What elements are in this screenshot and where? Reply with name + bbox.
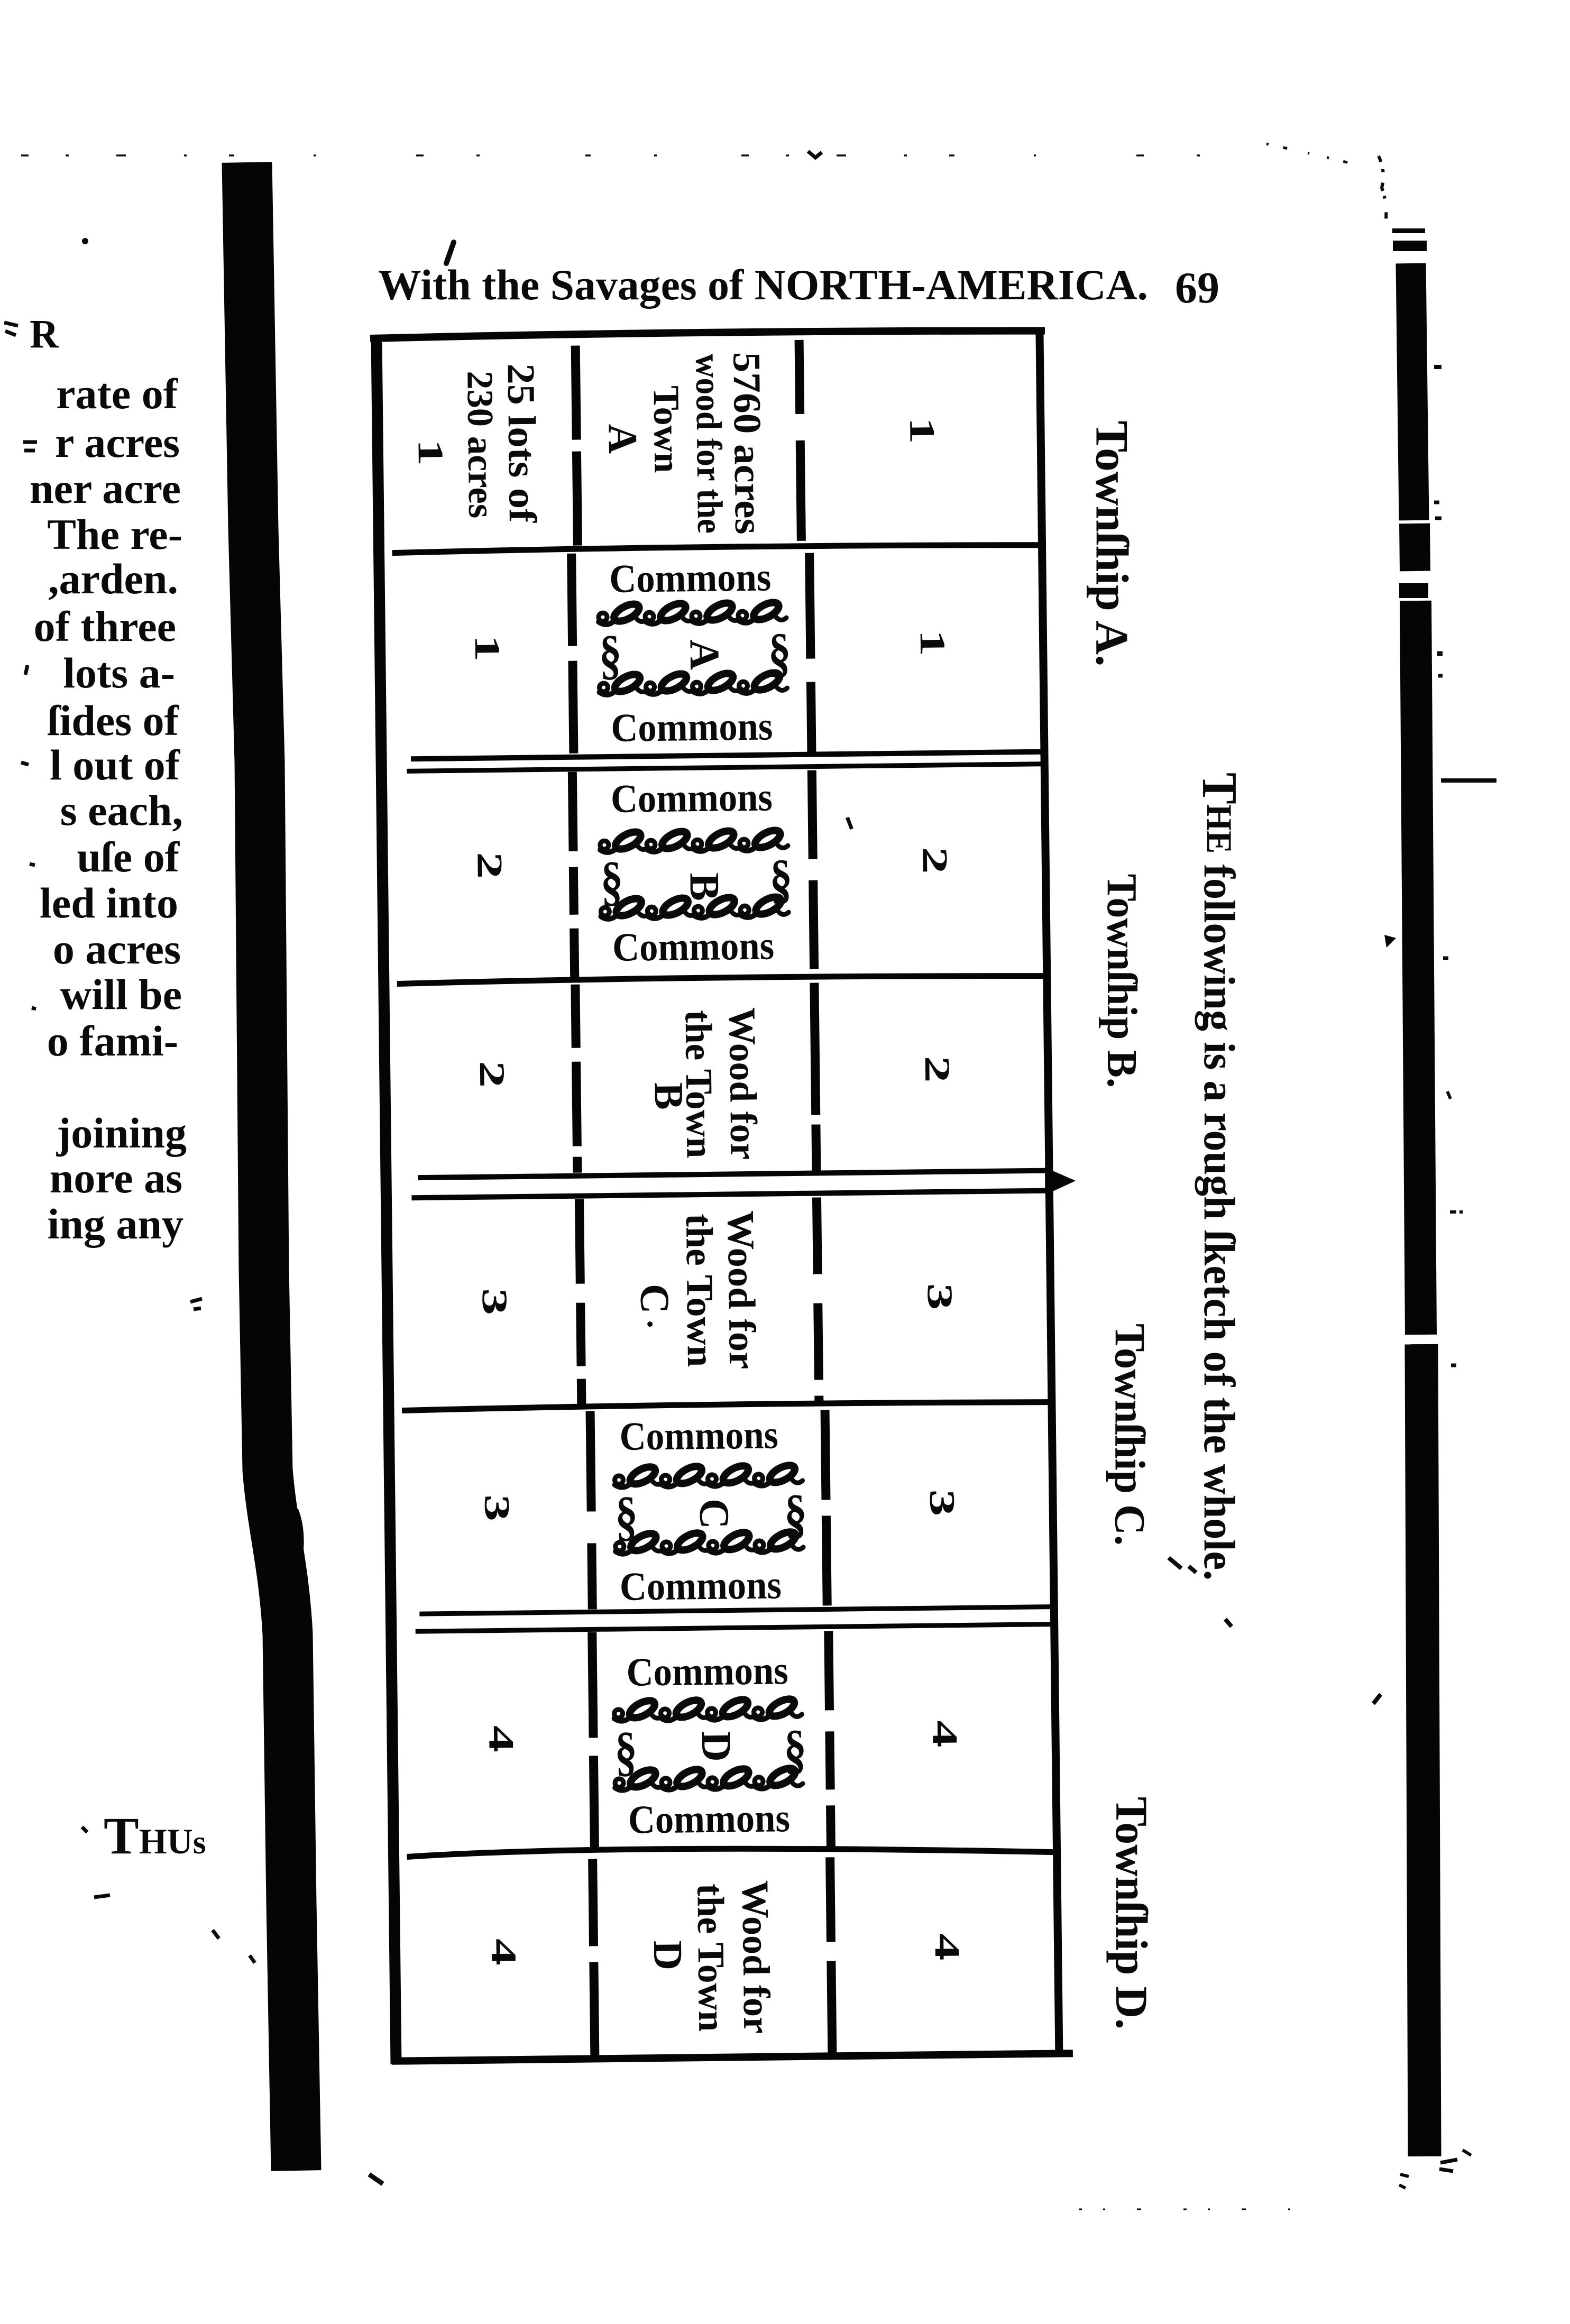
- svg-text:B: B: [646, 1082, 692, 1110]
- svg-text:led into: led into: [40, 879, 178, 927]
- svg-text:Commons: Commons: [609, 555, 772, 601]
- svg-text:r acres: r acres: [55, 418, 180, 466]
- svg-text:A: A: [681, 639, 728, 670]
- svg-text:4: 4: [928, 1933, 968, 1961]
- svg-text:D: D: [693, 1731, 740, 1762]
- svg-text:4: 4: [484, 1938, 524, 1965]
- svg-text:s each,: s each,: [60, 786, 183, 834]
- svg-text:Townſhip A.: Townſhip A.: [1086, 421, 1137, 667]
- svg-text:lots a-: lots a-: [63, 649, 175, 697]
- svg-text:uſe of: uſe of: [77, 833, 180, 881]
- svg-text:ſides of: ſides of: [48, 696, 180, 745]
- svg-text:THE following is a rough ſketc: THE following is a rough ſketch of the w…: [1192, 773, 1247, 1581]
- svg-text:4: 4: [925, 1720, 965, 1748]
- svg-text:1: 1: [902, 417, 942, 444]
- svg-text:Wood for: Wood for: [721, 1007, 765, 1160]
- svg-text:Commons: Commons: [619, 1563, 782, 1609]
- svg-text:3: 3: [475, 1288, 515, 1316]
- svg-text:The re-: The re-: [47, 510, 182, 558]
- svg-text:5760 acres: 5760 acres: [724, 352, 770, 535]
- svg-text:Commons: Commons: [628, 1796, 790, 1842]
- svg-text:230 acres: 230 acres: [459, 371, 501, 519]
- svg-text:Commons: Commons: [611, 704, 773, 750]
- svg-text:nore as: nore as: [50, 1154, 182, 1202]
- svg-text:the Town: the Town: [689, 1883, 733, 2032]
- svg-text:ing any: ing any: [48, 1200, 184, 1248]
- svg-text:With the Savages of NORTH-AMER: With the Savages of NORTH-AMERICA.: [378, 261, 1148, 309]
- svg-text:THUs: THUs: [104, 1806, 206, 1865]
- svg-text:1: 1: [467, 635, 508, 662]
- svg-text:rate of: rate of: [56, 370, 179, 418]
- svg-text:3: 3: [920, 1283, 960, 1310]
- svg-text:R: R: [30, 312, 59, 356]
- svg-text:o acres: o acres: [53, 925, 181, 973]
- svg-text:ner acre: ner acre: [30, 464, 181, 512]
- svg-text:4: 4: [481, 1725, 521, 1752]
- svg-text:B: B: [681, 872, 728, 901]
- svg-text:3: 3: [477, 1494, 517, 1522]
- svg-text:D: D: [645, 1940, 692, 1970]
- svg-text:Town: Town: [646, 385, 687, 473]
- svg-text:o fami-: o fami-: [47, 1017, 178, 1065]
- svg-text:the Town: the Town: [678, 1214, 722, 1367]
- svg-text:1: 1: [913, 629, 953, 657]
- svg-text:C: C: [691, 1498, 738, 1529]
- svg-text:25 lots of: 25 lots of: [499, 363, 544, 523]
- svg-text:3: 3: [922, 1489, 962, 1517]
- svg-text:1: 1: [411, 439, 451, 466]
- svg-text:2: 2: [470, 852, 510, 879]
- svg-text:of three: of three: [34, 602, 176, 650]
- svg-text:Commons: Commons: [610, 775, 773, 821]
- svg-text:Wood for: Wood for: [734, 1880, 778, 2034]
- svg-text:,arden.: ,arden.: [48, 555, 178, 603]
- svg-text:69: 69: [1175, 263, 1219, 313]
- svg-text:Townſhip D.: Townſhip D.: [1106, 1797, 1157, 2029]
- svg-text:A: A: [600, 424, 646, 454]
- svg-text:2: 2: [472, 1061, 512, 1088]
- svg-text:l out of: l out of: [50, 741, 181, 789]
- svg-text:will be: will be: [60, 970, 182, 1018]
- svg-text:Townſhip B.: Townſhip B.: [1098, 874, 1145, 1088]
- svg-text:joining: joining: [56, 1109, 187, 1157]
- svg-text:Wood for: Wood for: [720, 1210, 764, 1370]
- svg-text:Commons: Commons: [612, 923, 775, 969]
- svg-text:Commons: Commons: [626, 1648, 788, 1694]
- svg-text:Commons: Commons: [619, 1412, 778, 1458]
- svg-text:2: 2: [917, 1055, 958, 1083]
- svg-text:Townſhip C.: Townſhip C.: [1106, 1324, 1154, 1546]
- svg-text:wood for the: wood for the: [688, 353, 730, 534]
- svg-text:2: 2: [915, 847, 955, 874]
- svg-text:C: C: [632, 1283, 678, 1313]
